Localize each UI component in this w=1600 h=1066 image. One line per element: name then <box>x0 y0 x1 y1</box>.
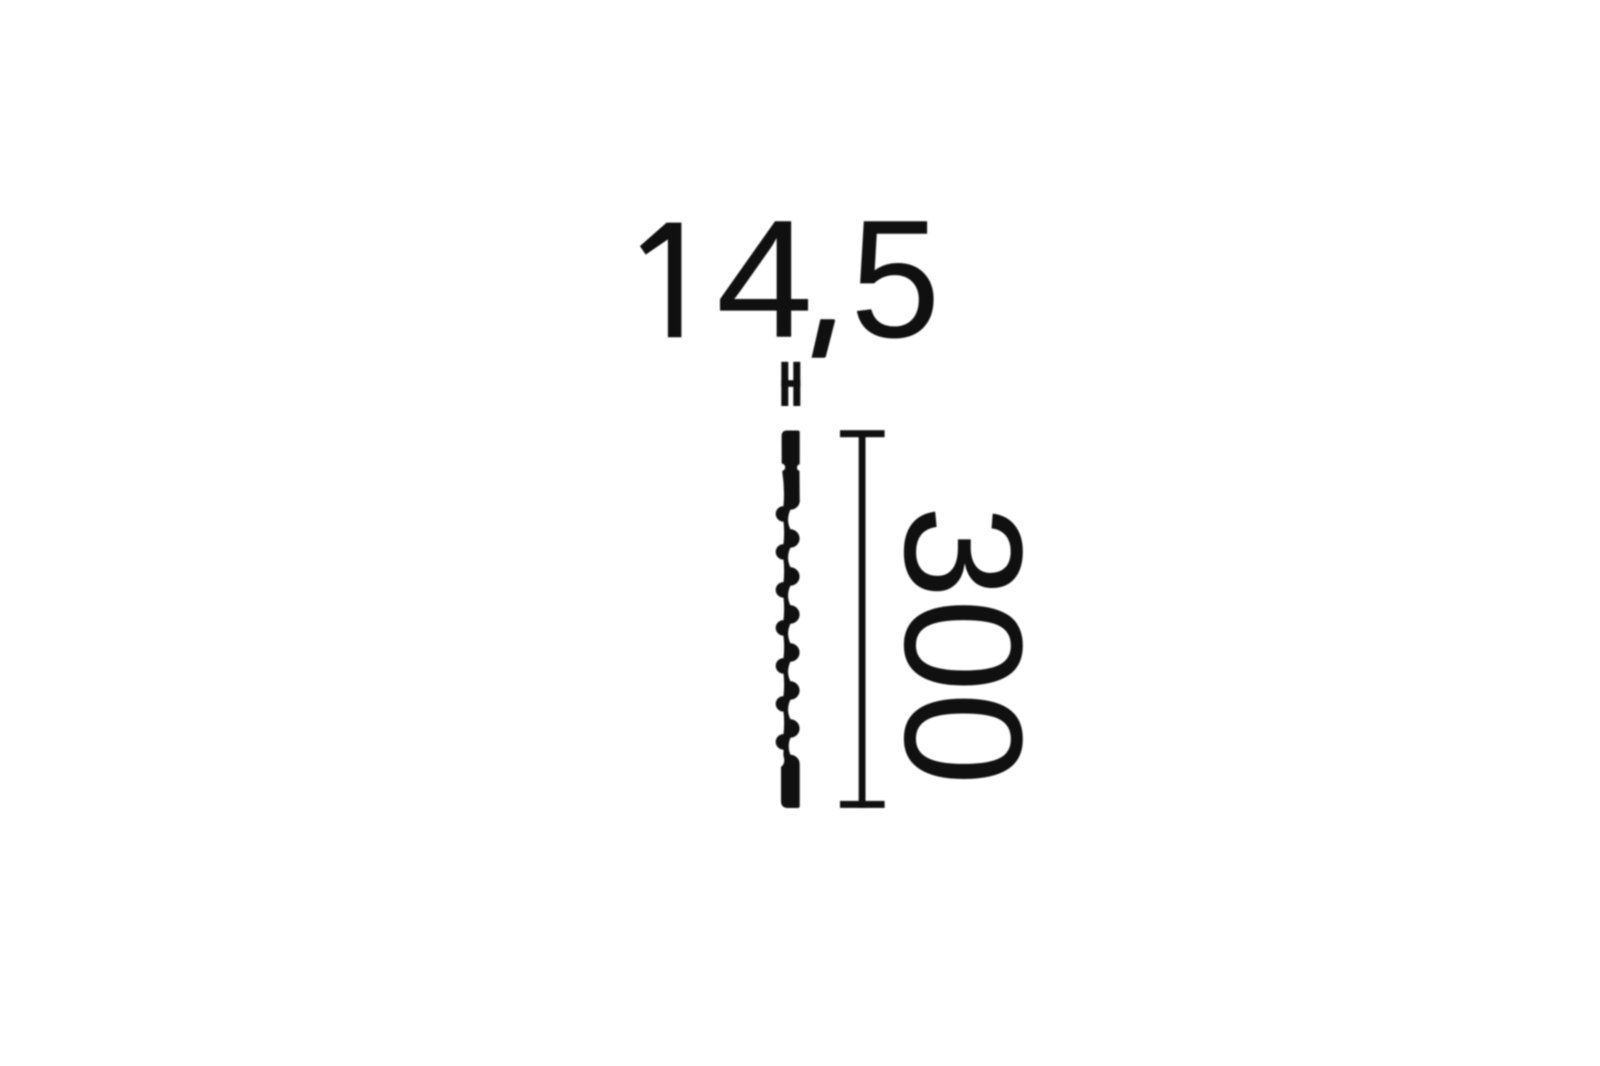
svg-text:4: 4 <box>716 186 813 373</box>
svg-text:5: 5 <box>850 185 940 372</box>
svg-text:300: 300 <box>870 505 1058 785</box>
